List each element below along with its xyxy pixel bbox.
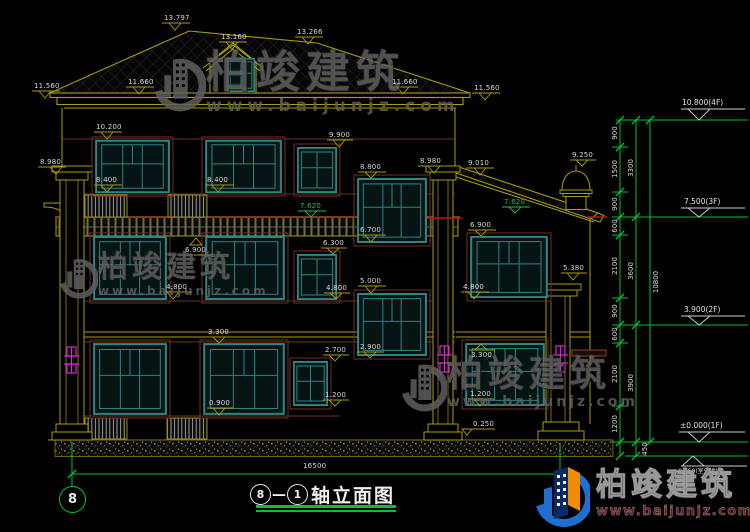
elev-label: 11.560: [34, 82, 60, 90]
elev-label: 1.200: [325, 391, 346, 399]
elev-label: 11.660: [128, 78, 154, 86]
dim-label-overall-height: 10800: [652, 260, 660, 304]
elev-label: 9.010: [468, 159, 489, 167]
elev-label: 2.700: [325, 346, 346, 354]
elev-label: 7.620: [504, 198, 525, 206]
grid-bubble-8: 8: [59, 486, 86, 513]
watermark-logo-icon: [54, 252, 98, 304]
elev-label: 7.620: [300, 202, 321, 210]
brand-logo-text: 柏竣建筑: [596, 470, 750, 501]
level-label-3f: 7.500(3F): [684, 197, 720, 206]
watermark-url: www.baijunjz.com: [206, 96, 460, 116]
dim-label: 3300: [627, 146, 635, 190]
elev-label: 6.300: [323, 239, 344, 247]
elev-label: 8.400: [207, 176, 228, 184]
elev-label: 6.700: [360, 226, 381, 234]
elev-label: 13.266: [297, 28, 323, 36]
elev-label: 3.300: [208, 328, 229, 336]
elev-label: 8.980: [40, 158, 61, 166]
elev-label: 9.250: [572, 151, 593, 159]
dim-label: 600: [611, 204, 619, 248]
elev-label: 11.560: [474, 84, 500, 92]
axis-circle-8: 8: [250, 484, 271, 505]
elev-label: 11.660: [392, 78, 418, 86]
dim-label: 1200: [611, 402, 619, 446]
drawing-title-text: 轴立面图: [311, 481, 395, 508]
elev-label: 3.300: [471, 351, 492, 359]
elev-label: 2.900: [360, 343, 381, 351]
elev-label: 4.800: [166, 283, 187, 291]
watermark-logo-icon: [146, 50, 206, 118]
watermark-brand: 柏竣建筑: [447, 356, 638, 394]
watermark: 柏竣建筑 www.baijunjz.com: [395, 356, 638, 418]
watermark-brand: 柏竣建筑: [206, 50, 460, 96]
elev-label: 6.900: [185, 246, 206, 254]
title-underline-2: [256, 510, 396, 512]
elev-label: 5.380: [563, 264, 584, 272]
elev-label: 13.797: [164, 14, 190, 22]
elev-label: 4.800: [463, 283, 484, 291]
title-underline: [256, 505, 396, 508]
drawing-title: 8 — 1 轴立面图: [250, 481, 395, 508]
elev-label: 4.800: [326, 284, 347, 292]
elev-label: 0.250: [473, 420, 494, 428]
watermark-logo-icon: [395, 356, 447, 418]
elev-label: 1.200: [470, 390, 491, 398]
level-label-2f: 3.900(2F): [684, 305, 720, 314]
brand-logo-url: www.baijunjz.com: [596, 504, 750, 519]
elev-label: 9.900: [329, 131, 350, 139]
elev-label: 8.980: [420, 157, 441, 165]
dim-label-overall-width: 16500: [303, 462, 326, 470]
elev-label: 13.160: [221, 33, 247, 41]
brand-logo-icon: [528, 459, 590, 529]
elev-label: 5.000: [360, 277, 381, 285]
ground-band: [55, 440, 613, 457]
dim-label: 2100: [611, 352, 619, 396]
watermark: 柏竣建筑 www.baijunjz.com: [54, 252, 269, 304]
dim-label: 600: [611, 312, 619, 356]
elev-label: 10.200: [96, 123, 122, 131]
elev-label: 8.400: [96, 176, 117, 184]
level-label-1f: ±0.000(1F): [680, 421, 723, 430]
cad-elevation-drawing: 13.797 13.160 13.266 11.660 11.560 11.66…: [0, 0, 750, 532]
elev-label: 6.900: [470, 221, 491, 229]
level-marker-triangles: [679, 109, 747, 466]
brand-logo: 柏竣建筑 www.baijunjz.com: [528, 459, 750, 529]
level-label-4f: 10.800(4F): [682, 98, 723, 107]
axis-circle-1: 1: [287, 484, 308, 505]
elev-label: 0.900: [209, 399, 230, 407]
dim-label: 2100: [611, 244, 619, 288]
dim-label: 3600: [627, 249, 635, 293]
dim-label: 3900: [627, 361, 635, 405]
axis-dash: —: [272, 487, 286, 503]
elev-label: 8.800: [360, 163, 381, 171]
watermark-brand: 柏竣建筑: [98, 252, 269, 284]
